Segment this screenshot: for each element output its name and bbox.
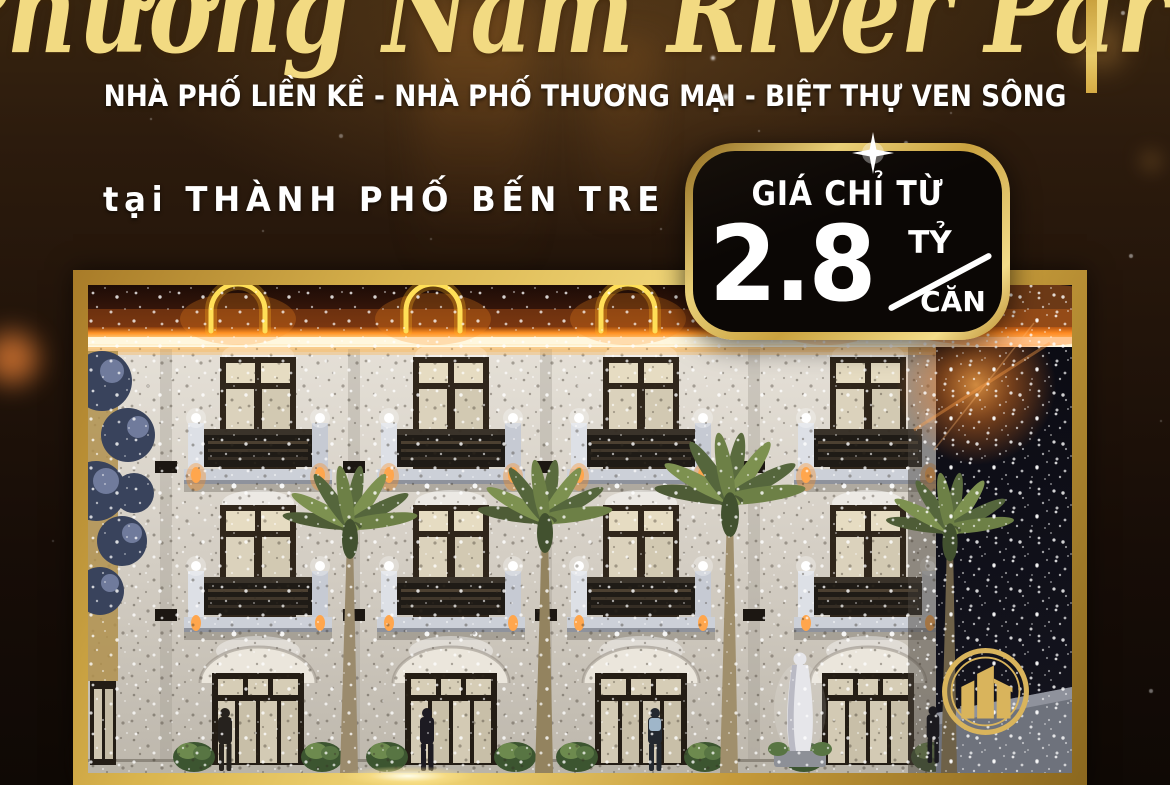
product-types-subtitle: NHÀ PHỐ LIỀN KỀ - NHÀ PHỐ THƯƠNG MẠI - B… (53, 78, 1118, 114)
snow-particles (916, 285, 1072, 773)
price-unit-numerator: TỶ (908, 225, 952, 261)
bokeh-glow (1140, 150, 1162, 172)
location-line: tại THÀNH PHỐ BẾN TRE (103, 180, 665, 220)
price-badge: GIÁ CHỈ TỪ 2.8 TỶ CĂN (685, 143, 1010, 340)
real-estate-poster: Phương Nam River Park NHÀ PHỐ LIỀN KỀ - … (0, 0, 1170, 785)
price-amount: 2.8 (709, 217, 874, 313)
project-title: Phương Nam River Park (0, 0, 1170, 71)
building-night-render (88, 285, 1072, 773)
gold-photo-frame (73, 270, 1087, 785)
bokeh-glow (0, 332, 38, 384)
price-unit-denominator: CĂN (920, 285, 986, 318)
price-unit: TỶ CĂN (886, 223, 986, 325)
price-row: 2.8 TỶ CĂN (693, 217, 1002, 325)
four-point-star-icon (851, 131, 895, 175)
